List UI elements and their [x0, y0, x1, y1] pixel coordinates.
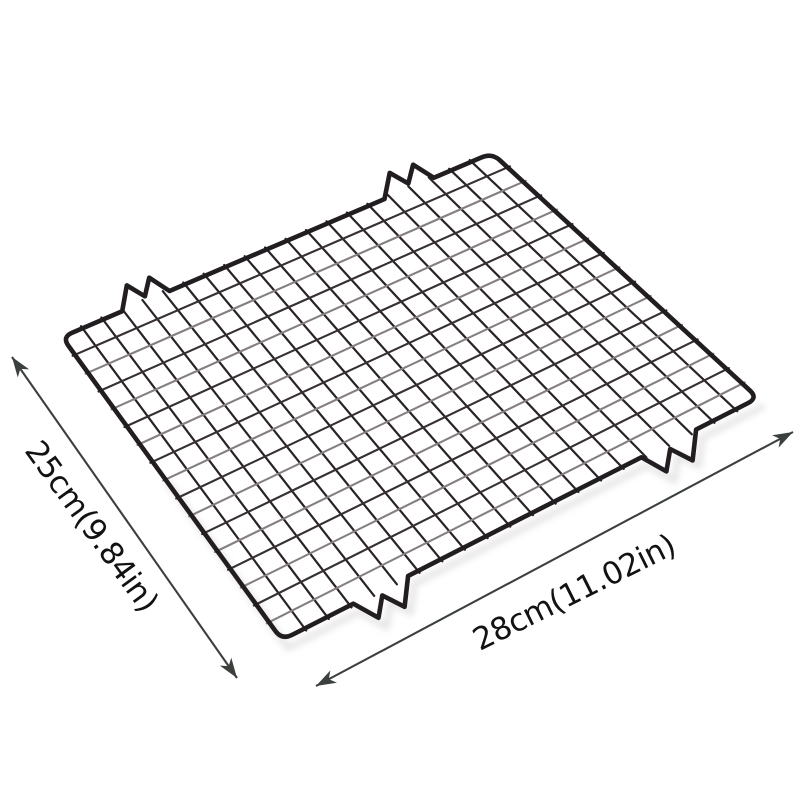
rack-wire: [202, 310, 666, 534]
rack-wire: [470, 160, 738, 411]
rack-wire: [228, 339, 698, 570]
side-dimension-label: 25cm(9.84in): [17, 434, 165, 619]
side-dimension-annotation: 25cm(9.84in): [12, 357, 237, 678]
rack-wire: [163, 267, 619, 480]
rack-wire: [189, 296, 651, 516]
rack-wire: [137, 238, 588, 445]
bottom-dimension-annotation: 28cm(11.02in): [316, 432, 793, 686]
rack-wire: [449, 169, 714, 423]
rack-wire: [176, 282, 635, 499]
cooling-rack: [66, 156, 764, 648]
rack-wire: [204, 274, 443, 562]
rack-wire: [215, 325, 682, 552]
rack-wire: [163, 291, 397, 584]
rack-wire: [267, 383, 745, 624]
dimension-diagram: 25cm(9.84in) 28cm(11.02in): [0, 0, 800, 800]
rack-wire: [183, 283, 419, 573]
bottom-dimension-label: 28cm(11.02in): [467, 527, 681, 658]
rack-wire: [150, 253, 604, 463]
side-dimension-arrow: [12, 357, 237, 678]
product-dimension-image: 25cm(9.84in) 28cm(11.02in): [0, 0, 800, 800]
rack-wire: [265, 248, 510, 527]
bottom-dimension-arrow: [316, 432, 793, 686]
rack-shadow: [167, 406, 764, 648]
